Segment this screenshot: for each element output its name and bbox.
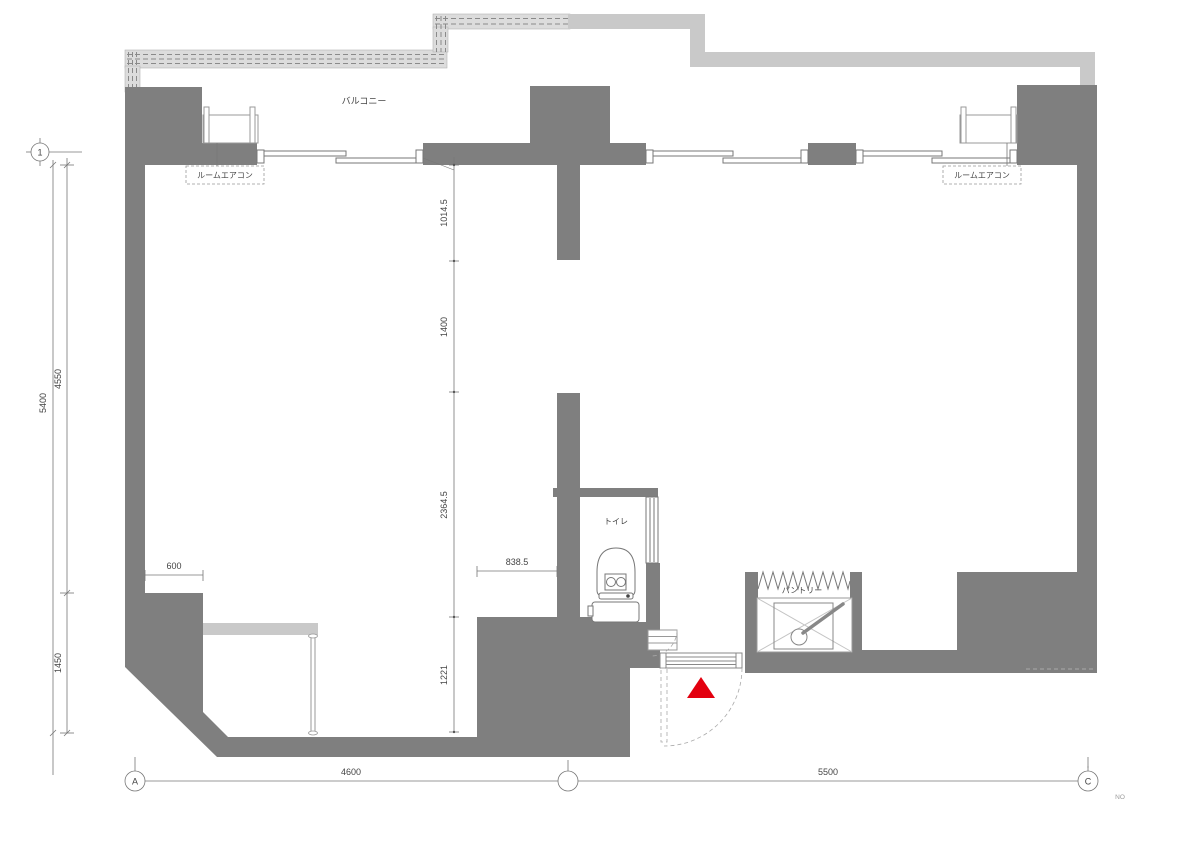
aircon-label-right: ルームエアコン <box>943 166 1021 184</box>
entrance-door-arc <box>664 668 742 746</box>
counter-leg <box>311 636 315 733</box>
wall-pillar-center <box>530 86 610 143</box>
grid-label-c: C <box>1085 777 1092 787</box>
floor-plan-canvas: ルームエアコン ルームエアコン バルコニー トイレ パントリー 冷蔵庫 <box>0 0 1190 842</box>
dim-left-upper: 4550 <box>53 369 63 389</box>
floor-plan-drawing: ルームエアコン ルームエアコン バルコニー トイレ パントリー 冷蔵庫 <box>0 0 1190 842</box>
dim-left-lower: 1450 <box>53 653 63 673</box>
entrance-triangle-icon <box>687 677 715 698</box>
wall-left <box>125 87 145 667</box>
wall-left-widening <box>125 593 203 667</box>
aircon-label-left: ルームエアコン <box>186 166 264 184</box>
dim-center-upper: 1014.5 <box>439 199 449 227</box>
grid-marker-b <box>558 771 578 791</box>
grid-label-1: 1 <box>37 148 42 158</box>
window-left <box>257 143 423 165</box>
aircon-left-label: ルームエアコン <box>197 171 253 180</box>
refrigerator-icon <box>757 598 852 652</box>
wall-pantry-left <box>745 572 758 650</box>
grid-label-a: A <box>132 777 138 787</box>
dim-passage: 838.5 <box>506 557 529 567</box>
wall-toilet-top <box>553 488 658 497</box>
page-note: NO <box>1115 794 1125 801</box>
wall-stub-upper <box>557 165 580 260</box>
entrance-threshold <box>660 653 742 668</box>
toilet-sliding-door <box>646 497 658 563</box>
entrance-step <box>648 630 677 650</box>
aircon-right-label: ルームエアコン <box>954 171 1010 180</box>
toilet-label: トイレ <box>604 517 628 526</box>
wall-corner-top-right <box>1017 85 1097 165</box>
wall-stub-mid <box>557 393 580 497</box>
counter <box>203 623 318 735</box>
wall-toilet-left <box>557 497 580 618</box>
wall-block-bottom-right <box>957 572 1077 673</box>
dim-span-ab: 4600 <box>341 767 361 777</box>
dim-center-mid: 2364.5 <box>439 491 449 519</box>
entrance <box>648 630 742 746</box>
dim-left-total: 5400 <box>38 393 48 413</box>
dim-center-lower: 1221 <box>439 665 449 685</box>
dim-center-opening: 1400 <box>439 317 449 337</box>
wall-top-2 <box>423 143 646 165</box>
wall-top-3 <box>808 143 856 165</box>
dim-span-bc: 5500 <box>818 767 838 777</box>
wall-top-1 <box>125 143 257 165</box>
dim-counter-recess: 600 <box>166 561 181 571</box>
window-right <box>856 143 1017 165</box>
balcony-slab <box>568 14 1095 85</box>
balcony-screen-band <box>125 14 570 92</box>
pantry-fixtures <box>757 572 852 652</box>
counter-top <box>203 623 318 635</box>
entrance-door-leaf <box>661 668 667 742</box>
wall-right <box>1077 165 1097 673</box>
walls <box>125 85 1097 757</box>
window-center <box>646 143 808 165</box>
wall-entrance-block <box>477 617 630 757</box>
balcony-label: バルコニー <box>342 96 387 106</box>
